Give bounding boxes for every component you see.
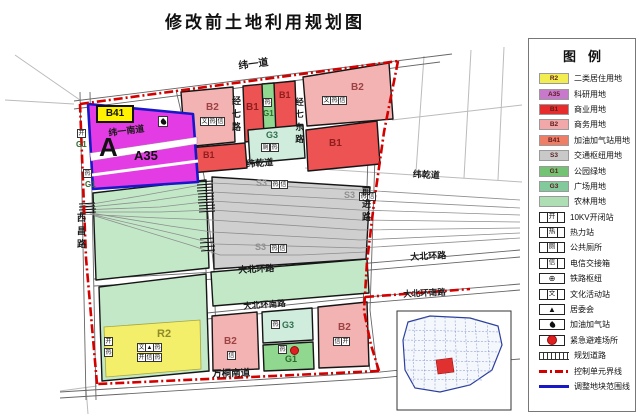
legend-swatch-farm	[539, 196, 569, 207]
legend-item-toilet: 厕 公共厕所	[529, 240, 635, 255]
railway-hub-icon: ⊕	[539, 273, 565, 284]
parcel-a-label: A	[99, 134, 118, 160]
legend-swatch-r2: R2	[539, 73, 569, 84]
inset-map	[397, 311, 511, 410]
substation-icon: 开	[539, 212, 565, 223]
b2-bottomleft-label: B2	[224, 337, 237, 347]
heat-station-icon: 热	[83, 169, 92, 178]
legend-item-substation: 开 10KV开闭站	[529, 210, 635, 225]
legend-swatch-a35: A35	[539, 89, 569, 100]
substation-icon: 开	[341, 337, 350, 346]
road-label-weiqiandao-east: 纬乾道	[413, 170, 440, 180]
legend-item-gas: 加油加气站	[529, 317, 635, 332]
legend-swatch-b1: B1	[539, 104, 569, 115]
inset-adjustment-area	[436, 358, 454, 374]
legend-item-r2: R2 二类居住用地	[529, 71, 635, 86]
substation-icon: 开	[104, 337, 113, 346]
r2-label: R2	[157, 329, 171, 340]
telecom-icon: 信	[216, 117, 225, 126]
heat-station-icon: 热	[271, 320, 280, 329]
road-label-dabeihuanlu-west: 大北环路	[238, 264, 274, 275]
legend-title: 图例	[529, 39, 635, 71]
control-unit-boundary-line	[539, 370, 569, 373]
legend-item-s3: S3 交通枢纽用地	[529, 148, 635, 163]
legend-item-g3: G3 广场用地	[529, 179, 635, 194]
legend-swatch-g1: G1	[539, 166, 569, 177]
g1-label-west1: G1	[76, 141, 87, 149]
heat-station-icon: 热	[270, 143, 279, 152]
b41-gas-site-label: B41	[96, 105, 134, 123]
legend-item-planned-road: 规划道路	[529, 348, 635, 363]
emergency-shelter-icon	[539, 335, 565, 346]
legend-item-g1: G1 公园绿地	[529, 163, 635, 178]
g1-label-west2: G1	[85, 181, 96, 189]
s3-label-2: S3	[255, 243, 266, 252]
legend-item-a35: A35 科研用地	[529, 86, 635, 101]
legend-item-heat: 热 热力站	[529, 225, 635, 240]
toilet-icon: 厕	[539, 242, 565, 253]
parcel-a35-label: A35	[134, 149, 158, 162]
substation-icon: 开	[77, 129, 86, 138]
heat-station-icon: 热	[153, 353, 162, 362]
legend-item-adjust-boundary: 调整地块范围线	[529, 379, 635, 394]
road-label-jingqidonglu: 经七东路	[294, 96, 305, 145]
heat-station-icon: 热	[153, 343, 162, 352]
gas-flame-icon	[539, 319, 565, 330]
b1-center-label: B1	[246, 103, 259, 113]
legend-item-railhub: ⊕ 铁路枢纽	[529, 271, 635, 286]
committee-icon: ▲	[539, 304, 565, 315]
legend-swatch-g3: G3	[539, 181, 569, 192]
heat-station-icon: 热	[539, 227, 565, 238]
s3-label-3: S3	[344, 191, 355, 200]
road-label-xichanglu: 西昌路	[76, 212, 87, 251]
legend-swatch-s3: S3	[539, 150, 569, 161]
b1-right-of-strip-label: B1	[279, 91, 291, 100]
toilet-icon: 厕	[261, 143, 270, 152]
g1-strip-label: G1	[263, 110, 274, 118]
road-label-jingqilu: 经七路	[231, 95, 242, 134]
culture-icon: 文	[539, 289, 565, 300]
legend-item-committee: ▲ 居委会	[529, 302, 635, 317]
planning-map-page: 修改前土地利用规划图	[0, 0, 640, 420]
legend-item-culture: 文 文化活动站	[529, 286, 635, 301]
telecom-icon: 信	[227, 351, 236, 360]
b2-top-label: B2	[206, 103, 219, 113]
s3-label-1: S3	[256, 179, 267, 188]
road-label-dabeihuannanlu-east: 大北环南路	[403, 288, 446, 299]
g3-bottom-label: G3	[282, 321, 294, 330]
telecom-icon: 信	[279, 180, 288, 189]
heat-station-icon: 热	[104, 348, 113, 357]
legend-item-b2: B2 商务用地	[529, 117, 635, 132]
g3-top-label: G3	[266, 131, 278, 140]
heat-station-icon: 热	[263, 98, 272, 107]
adjustment-boundary-line	[539, 385, 569, 388]
telecom-icon: 信	[278, 244, 287, 253]
telecom-icon: 信	[338, 96, 347, 105]
road-label-dabeihuanlu-east: 大北环路	[410, 251, 446, 262]
b2-bottomright-label: B2	[338, 323, 351, 333]
heat-station-icon: 热	[278, 345, 287, 354]
planned-road-line	[539, 352, 569, 360]
legend-panel: 图例 R2 二类居住用地 A35 科研用地 B1 商业用地 B2 商务用地 B4…	[528, 38, 636, 412]
b1-southwest-label: B1	[203, 151, 215, 160]
block-b1-right	[306, 121, 380, 171]
gas-flame-icon	[158, 116, 168, 127]
b1-east-label: B1	[329, 139, 342, 149]
road-label-weiqiandao-west: 纬乾道	[246, 158, 274, 169]
legend-item-b41: B41 加油加气站用地	[529, 133, 635, 148]
b2-topright-label: B2	[351, 83, 364, 93]
road-label-wantongnandao: 万桐南道	[212, 369, 250, 380]
block-b2-bottomright	[318, 302, 369, 368]
legend-item-shelter: 紧急避难场所	[529, 333, 635, 348]
road-label-qianjinlu: 前进路	[361, 185, 372, 224]
legend-item-farm: 农林用地	[529, 194, 635, 209]
legend-item-unit-boundary: 控制单元界线	[529, 363, 635, 378]
legend-swatch-b41: B41	[539, 135, 569, 146]
telecom-icon: 信	[539, 258, 565, 269]
legend-item-telecom: 信 电信交接箱	[529, 256, 635, 271]
legend-swatch-b2: B2	[539, 119, 569, 130]
legend-item-b1: B1 商业用地	[529, 102, 635, 117]
g1-bottom-label: G1	[285, 355, 297, 364]
